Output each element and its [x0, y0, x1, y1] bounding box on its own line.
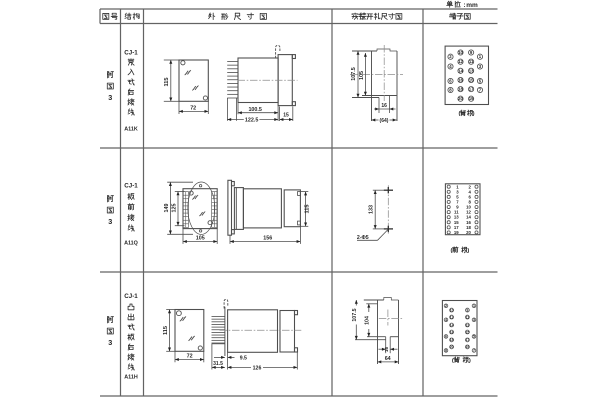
- svg-text:6: 6: [445, 335, 447, 339]
- svg-text:105: 105: [359, 71, 365, 80]
- svg-text:CJ-1: CJ-1: [124, 183, 138, 190]
- svg-text:12: 12: [450, 315, 454, 319]
- svg-text:14: 14: [458, 68, 463, 73]
- svg-text:(: (: [451, 248, 453, 254]
- svg-text:115: 115: [304, 204, 310, 213]
- svg-text:104: 104: [364, 316, 370, 325]
- svg-text:4: 4: [445, 318, 447, 322]
- svg-text:122.5: 122.5: [245, 118, 259, 124]
- svg-text:20: 20: [450, 345, 454, 349]
- svg-text:16: 16: [450, 330, 454, 334]
- svg-text:105: 105: [196, 236, 205, 242]
- svg-text:20: 20: [466, 230, 471, 235]
- svg-text:mm: mm: [466, 2, 478, 9]
- svg-text:31.5: 31.5: [213, 361, 223, 367]
- svg-text:11: 11: [465, 315, 469, 319]
- svg-text:15: 15: [465, 330, 469, 334]
- svg-text:115: 115: [163, 326, 169, 335]
- svg-text:10: 10: [458, 50, 463, 55]
- svg-text:3: 3: [108, 217, 112, 226]
- svg-text:(64): (64): [380, 118, 389, 124]
- svg-text:14: 14: [450, 323, 454, 327]
- svg-text:): ): [469, 358, 471, 364]
- svg-text:72: 72: [187, 354, 193, 360]
- svg-text:107.5: 107.5: [352, 308, 358, 321]
- svg-text:13: 13: [465, 323, 469, 327]
- svg-text:12: 12: [458, 59, 463, 64]
- svg-text:1: 1: [473, 304, 475, 308]
- svg-text:19: 19: [465, 345, 469, 349]
- svg-text:A11H: A11H: [124, 375, 138, 381]
- svg-text:5: 5: [473, 335, 475, 339]
- svg-text:16: 16: [458, 78, 463, 83]
- svg-text:17: 17: [469, 87, 474, 92]
- svg-text:CJ-1: CJ-1: [124, 293, 138, 300]
- svg-text:3: 3: [108, 93, 112, 102]
- svg-text:156: 156: [263, 236, 272, 242]
- svg-text:8: 8: [445, 349, 447, 353]
- svg-text:): ): [467, 248, 469, 254]
- svg-text:13: 13: [469, 68, 474, 73]
- svg-text:15: 15: [469, 78, 474, 83]
- svg-text:3: 3: [108, 338, 112, 347]
- svg-text:15: 15: [283, 112, 289, 118]
- svg-text:18: 18: [450, 338, 454, 342]
- svg-text:20: 20: [458, 96, 463, 101]
- svg-text:19: 19: [454, 230, 459, 235]
- svg-text:11: 11: [469, 59, 474, 64]
- svg-text:): ): [473, 111, 475, 117]
- svg-text:10: 10: [450, 308, 454, 312]
- svg-text:A11Q: A11Q: [124, 241, 138, 247]
- svg-text:9.5: 9.5: [240, 355, 247, 361]
- svg-text:125: 125: [171, 204, 177, 213]
- svg-text:17: 17: [465, 338, 469, 342]
- svg-text:CJ-1: CJ-1: [124, 50, 138, 57]
- svg-text:149: 149: [164, 204, 170, 213]
- svg-text:16: 16: [381, 103, 387, 109]
- svg-text:19: 19: [469, 96, 474, 101]
- svg-text:64: 64: [385, 356, 391, 362]
- svg-text:115: 115: [164, 77, 170, 86]
- svg-text:7: 7: [473, 349, 475, 353]
- svg-text:3: 3: [473, 318, 475, 322]
- svg-text:2: 2: [445, 304, 447, 308]
- svg-text:107.5: 107.5: [351, 67, 357, 81]
- svg-text:18: 18: [458, 87, 463, 92]
- svg-text:A11K: A11K: [124, 126, 138, 132]
- svg-text:133: 133: [369, 205, 375, 214]
- svg-text:16: 16: [384, 347, 389, 353]
- svg-text:126: 126: [253, 365, 262, 371]
- svg-text:72: 72: [190, 106, 196, 112]
- svg-text:9: 9: [466, 308, 468, 312]
- svg-text:100.5: 100.5: [248, 107, 262, 113]
